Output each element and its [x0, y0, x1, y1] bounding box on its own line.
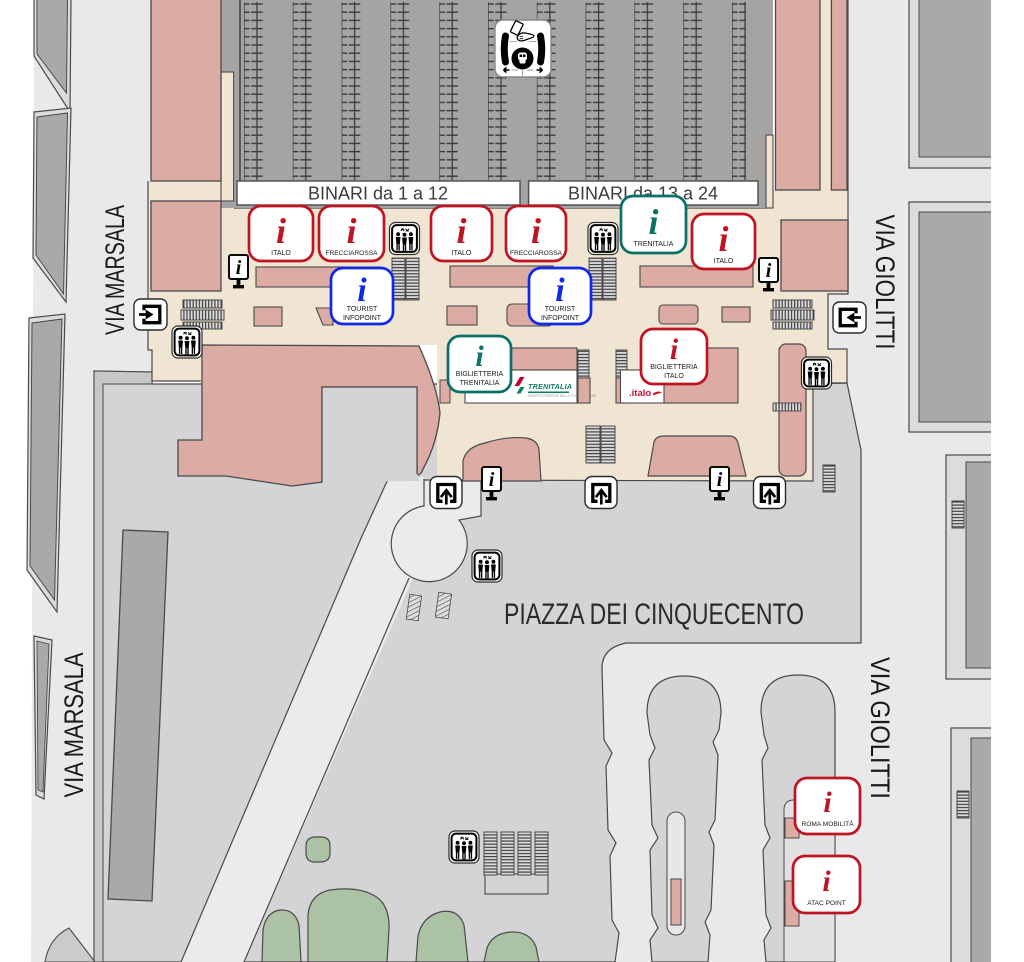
svg-text:i: i [357, 272, 367, 309]
svg-text:FRECCIAROSSA: FRECCIAROSSA [325, 250, 378, 257]
svg-text:TRENITALIA: TRENITALIA [460, 380, 500, 387]
svg-text:.italo: .italo [629, 388, 651, 399]
svg-text:TOURIST: TOURIST [545, 306, 576, 313]
svg-text:VIA MARSALA: VIA MARSALA [59, 653, 89, 798]
svg-text:i: i [648, 202, 658, 242]
svg-text:VIA GIOLITTI: VIA GIOLITTI [870, 215, 900, 350]
svg-text:i: i [475, 340, 484, 373]
svg-text:i: i [276, 211, 286, 251]
svg-text:i: i [531, 211, 541, 251]
svg-text:ITALO: ITALO [714, 258, 734, 265]
svg-text:i: i [346, 211, 356, 251]
svg-text:i: i [822, 865, 831, 898]
svg-text:i: i [555, 272, 565, 309]
svg-text:TRENITALIA: TRENITALIA [634, 241, 674, 248]
svg-text:ITALO: ITALO [664, 373, 684, 380]
svg-text:PIAZZA DEI CINQUECENTO: PIAZZA DEI CINQUECENTO [504, 598, 804, 631]
svg-text:VIA GIOLITTI: VIA GIOLITTI [865, 657, 895, 799]
svg-text:i: i [670, 333, 679, 366]
svg-text:INFOPOINT: INFOPOINT [541, 315, 580, 322]
svg-text:ITALO: ITALO [452, 250, 472, 257]
svg-text:i: i [718, 219, 728, 259]
svg-text:BIGLIETTERIA: BIGLIETTERIA [456, 371, 504, 378]
svg-text:i: i [456, 211, 466, 251]
svg-text:BIGLIETTERIA: BIGLIETTERIA [650, 364, 698, 371]
svg-text:i: i [823, 786, 832, 819]
svg-text:BINARI da 1 a 12: BINARI da 1 a 12 [308, 184, 448, 204]
svg-text:VIA MARSALA: VIA MARSALA [100, 205, 130, 335]
svg-text:ATAC POINT: ATAC POINT [807, 900, 846, 907]
svg-text:ITALO: ITALO [271, 250, 291, 257]
svg-text:TRENITALIA: TRENITALIA [528, 382, 572, 391]
svg-text:ROMA MOBILITÁ: ROMA MOBILITÁ [801, 819, 854, 828]
svg-text:INFOPOINT: INFOPOINT [343, 315, 382, 322]
svg-text:FRECCIAROSSA: FRECCIAROSSA [510, 250, 563, 257]
svg-text:TOURIST: TOURIST [347, 306, 378, 313]
